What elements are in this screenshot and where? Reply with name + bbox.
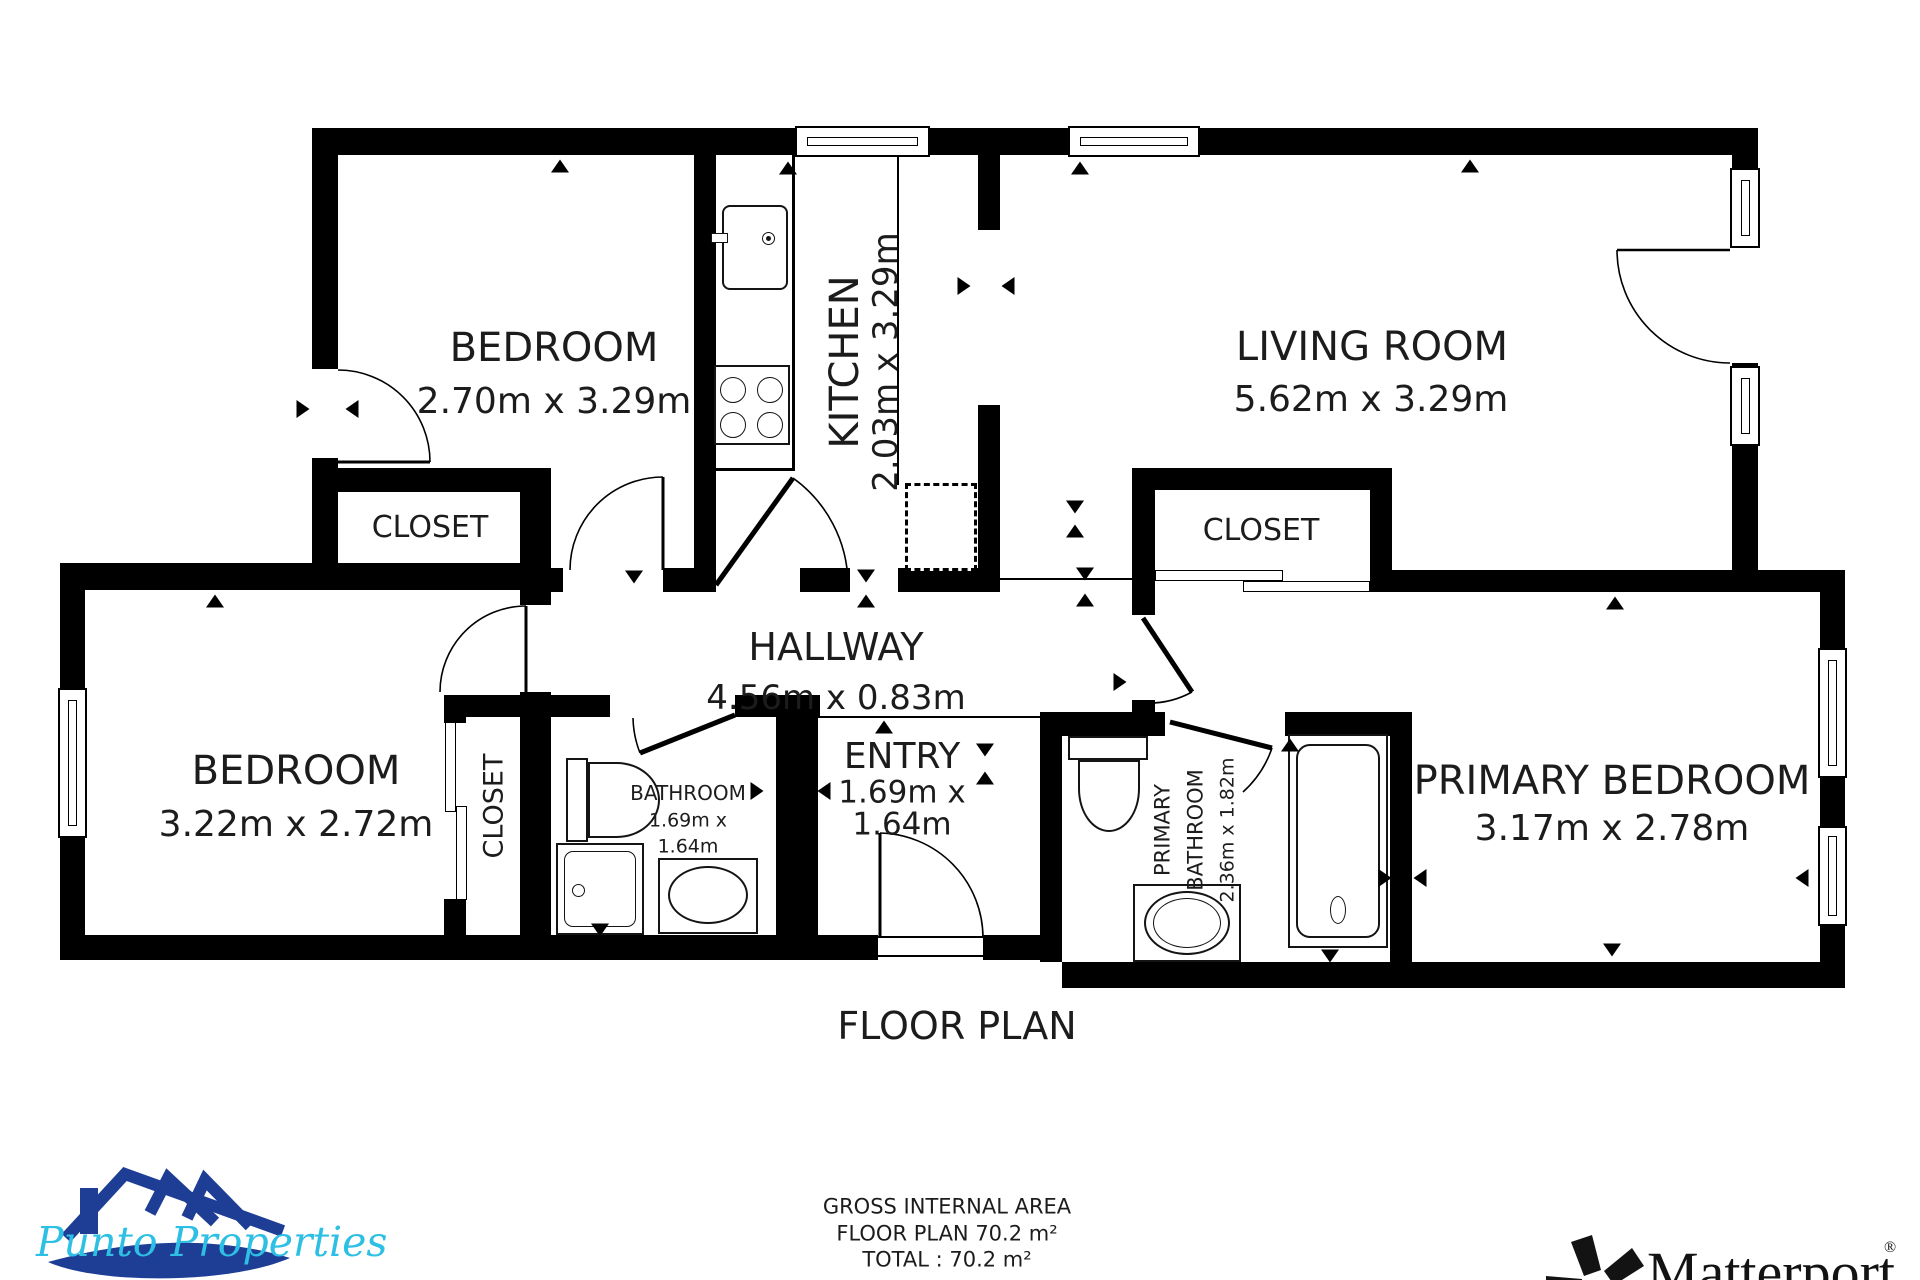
room-dims-bedroom-top: 2.70m x 3.29m [417,384,692,420]
plan-overlay: Punto Properties Matterport ® [0,0,1920,1280]
door-leaf [1170,722,1272,748]
room-dims-bedroom-left: 3.22m x 2.72m [159,807,434,843]
room-dims-bathroom-1: 1.69m x [649,812,727,831]
room-dims-living-room: 5.62m x 3.29m [1234,382,1509,418]
room-label-closet-top: CLOSET [372,513,489,543]
door-leaf [1143,618,1192,692]
footer-area-heading: GROSS INTERNAL AREA [823,1197,1071,1218]
room-label-primary-bathroom-1: PRIMARY [1153,784,1174,876]
room-label-bedroom-left: BEDROOM [192,751,401,791]
door-arc [1617,250,1730,363]
door-leaf [716,478,793,585]
matterport-logo: Matterport ® [1546,1235,1896,1280]
room-label-living-room: LIVING ROOM [1236,327,1508,367]
door-arc [880,833,983,938]
room-label-closet-small: CLOSET [481,754,508,859]
footer-total-area: TOTAL : 70.2 m² [862,1250,1031,1271]
matterport-icon-petal [1604,1248,1644,1280]
door-arc [570,477,663,570]
room-label-primary-bedroom: PRIMARY BEDROOM [1414,761,1811,801]
room-label-hallway: HALLWAY [748,628,923,666]
registered-mark: ® [1884,1239,1896,1256]
room-label-bathroom: BATHROOM [630,783,746,803]
room-label-entry: ENTRY [844,739,960,775]
door-arc [633,718,640,753]
room-label-closet-right: CLOSET [1203,516,1320,546]
door-arc [1243,748,1272,792]
room-dims-entry-1: 1.69m x [838,778,965,809]
provider-name: Matterport [1647,1240,1895,1280]
door-arc [793,478,848,583]
room-dims-kitchen: 2.03m x 3.29m [869,232,903,491]
room-label-kitchen: KITCHEN [825,275,865,448]
room-dims-primary-bathroom: 2.36m x 1.82m [1219,758,1238,903]
room-label-bedroom-top: BEDROOM [450,328,659,368]
room-dims-bathroom-2: 1.64m [658,838,719,857]
room-dims-primary-bedroom: 3.17m x 2.78m [1475,811,1750,847]
matterport-icon-petal [1546,1276,1582,1280]
punto-properties-logo: Punto Properties [35,1174,387,1278]
room-dims-hallway: 4.56m x 0.83m [706,681,965,715]
floor-plan-page: Punto Properties Matterport ® BEDROOM 2.… [0,0,1920,1280]
door-arc [1146,692,1192,703]
agency-name: Punto Properties [35,1218,387,1266]
page-title: FLOOR PLAN [837,1007,1076,1045]
door-leaf [640,715,735,753]
footer-floor-plan-area: FLOOR PLAN 70.2 m² [836,1224,1057,1245]
door-arc [440,606,526,692]
room-dims-entry-2: 1.64m [852,810,951,841]
room-label-primary-bathroom-2: BATHROOM [1186,769,1207,891]
matterport-icon-petal [1571,1235,1601,1276]
